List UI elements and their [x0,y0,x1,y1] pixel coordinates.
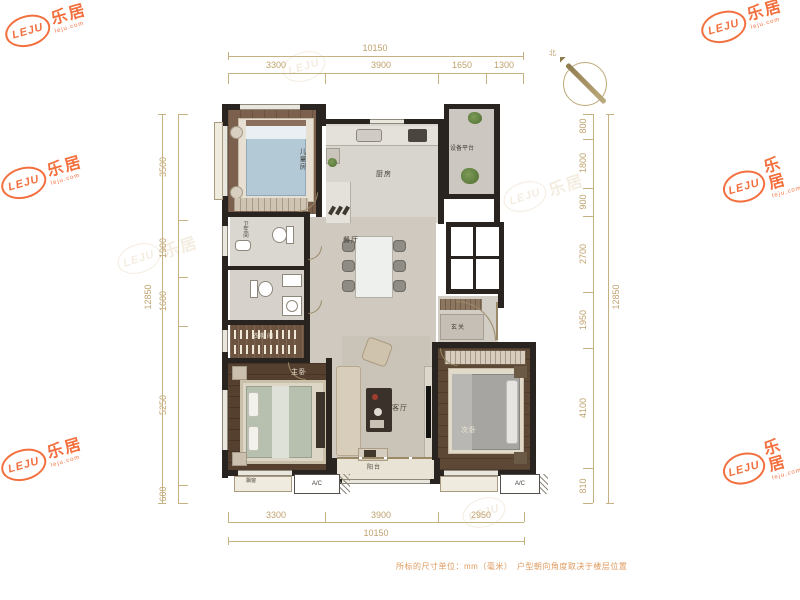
dim-line [228,541,524,542]
toilet-bowl [272,227,287,243]
window [222,330,228,352]
dim-tick [178,220,188,221]
sofa [336,366,361,456]
leju-oval-logo: LEJU [0,162,50,204]
dim-seg: 2700 [578,232,590,276]
dim-tick [524,537,525,545]
leju-oval-logo: LEJU [500,176,551,217]
dim-tick [523,52,524,60]
wall [304,212,310,363]
dim-seg: 4100 [578,386,590,430]
bay-window-second [440,476,498,492]
second-bed-pillows [506,380,518,444]
dim-seg: 1600 [158,279,170,323]
dim-line [593,114,594,503]
leju-oval-logo: LEJU [0,444,50,486]
dim-tick [583,348,593,349]
leju-oval-logo: LEJU [114,238,165,279]
dim-line [608,114,609,503]
balcony-sliding-door [337,457,434,459]
watermark-faint: LEJU 乐居 [500,164,588,217]
dim-seg: 1900 [158,226,170,270]
second-nightstand [514,452,527,464]
dim-tick [178,277,188,278]
wall [444,104,500,109]
dining-chair [393,280,406,292]
room-label-master-bedroom: 主卧 [291,367,307,377]
dim-tick [606,114,614,115]
wall [228,266,306,270]
dim-seg: 3900 [351,60,411,70]
watermark-top-right: LEJU 乐居leju.com [697,0,787,48]
kids-bed-pillows [246,126,306,139]
dim-line [228,56,523,57]
dim-seg: 900 [578,180,590,224]
dim-total-right: 12850 [611,275,623,319]
dim-line [228,522,524,523]
plant-icon [461,168,479,184]
dim-seg: 1800 [578,141,590,185]
bathroom-sink [235,240,251,251]
kitchen-stove [408,129,427,142]
wall [432,342,438,460]
dim-seg: 1300 [474,60,534,70]
watermark-top-left: LEJU 乐居leju.com [1,0,91,52]
dim-tick [606,503,614,504]
dim-tick [325,512,326,522]
toilet-tank [286,226,294,244]
compass-arrow-icon [554,51,565,62]
room-label-second-bedroom: 次卧 [461,425,477,435]
dim-tick [178,485,188,486]
room-label-bay-window: 飘窗 [246,477,256,484]
elevator-grid-line [451,256,499,259]
wall [494,104,500,199]
dim-line [162,114,163,503]
room-label-bathroom: 卫生间 [241,221,249,238]
dining-table [355,236,393,298]
dining-chair [393,260,406,272]
dim-seg: 2950 [451,510,511,520]
dim-tick [325,73,326,84]
master-bed-runner [272,386,289,458]
table-decor [374,408,382,416]
master-nightstand [232,452,247,466]
wall [498,294,504,308]
ac-label: A/C [312,481,322,487]
footer-note: 所标的尺寸单位：mm（毫米） 户型朝向角度取决于楼层位置 [396,561,627,572]
kids-nightstand-lamp [230,126,243,139]
dim-line [178,114,179,503]
wall [438,119,444,224]
window [222,226,228,256]
dim-tick [228,512,229,522]
bay-window-kids [214,122,223,200]
wall [226,212,310,217]
dining-chair [393,240,406,252]
wall [316,104,322,217]
leju-oval-logo: LEJU [1,10,54,52]
toilet-bowl [258,281,273,297]
wall [228,320,306,325]
dim-seg: 3500 [158,145,170,189]
dim-seg: 810 [578,464,590,508]
table-books [370,420,384,428]
balcony-floor [337,458,434,480]
dining-chair [342,260,355,272]
room-label-dining: 餐厅 [343,235,359,245]
room-label-living: 客厅 [392,403,408,413]
tv-screen [426,386,431,438]
washing-machine-drum [286,300,298,312]
wall [444,194,500,199]
room-label-equipment-platform: 设备平台 [450,143,474,152]
dim-seg: 5250 [158,383,170,427]
ac-hatch [540,474,548,494]
watermark-mid-right: LEJU 乐居leju.com [718,152,800,212]
second-nightstand [514,366,527,378]
window [342,479,430,484]
ac-platform-left: A/C [294,474,340,494]
wall [326,358,332,474]
dim-tick [158,503,166,504]
window [370,119,404,124]
kitchen-counter-left [326,182,351,223]
ac-hatch [340,474,350,494]
dim-tick [228,73,229,84]
dim-tick [438,512,439,522]
leju-oval-logo: LEJU [719,166,769,208]
dim-tick [583,292,593,293]
second-bed-duvet [452,374,472,450]
compass-north-label: 北 [549,48,556,58]
window [222,390,228,450]
floorplan-page: LEJU 乐居leju.com LEJU 乐居leju.com LEJU 乐居l… [0,0,800,600]
dim-seg: 1950 [578,298,590,342]
room-label-balcony: 阳台 [367,462,381,471]
bathroom-vanity [282,274,302,287]
kids-wardrobe [234,198,308,211]
wall [444,104,449,199]
dim-seg: 600 [158,472,170,516]
master-nightstand [232,366,247,380]
master-pillow [248,392,259,417]
dim-tick [228,52,229,60]
dim-seg: 3300 [246,510,306,520]
dining-chair [342,280,355,292]
dim-tick [178,503,188,504]
table-decor [372,394,378,400]
dim-tick [178,326,188,327]
room-label-entry: 玄关 [451,322,465,331]
window [240,104,300,110]
ac-platform-right: A/C [500,474,540,494]
dim-total-top: 10150 [345,43,405,53]
bay-window-master [234,476,292,492]
dim-tick [228,537,229,545]
dim-tick [438,73,439,84]
dim-seg: 3900 [351,510,411,520]
watermark-bottom-left: LEJU 乐居leju.com [0,433,88,486]
wall [494,196,500,224]
dim-tick [178,114,188,115]
master-tv-cabinet [316,392,325,448]
leju-oval-logo: LEJU [697,6,750,48]
dim-tick [523,73,524,84]
master-pillow [248,426,259,451]
dim-tick [524,512,525,522]
toilet-tank [250,280,258,298]
dim-seg: 3300 [246,60,306,70]
leju-oval-logo: LEJU [719,448,769,490]
dim-total-bottom: 10150 [346,528,406,538]
room-label-cloakroom: 衣帽间 [253,331,274,340]
dim-tick [486,73,487,84]
room-label-kitchen: 厨房 [376,169,392,179]
watermark-bottom-right: LEJU 乐居leju.com [718,434,800,494]
watermark-mid-left: LEJU 乐居leju.com [0,151,88,204]
dim-tick [158,114,166,115]
kitchen-sink [356,129,382,142]
cloakroom-hangers [234,345,300,354]
ac-label: A/C [515,481,525,487]
dim-total-left: 12850 [143,275,155,319]
room-label-kids-bedroom: 儿童房 [296,148,306,171]
dim-line [228,73,523,74]
wall [530,342,536,476]
plant-icon [328,158,337,167]
plant-icon [468,112,482,124]
